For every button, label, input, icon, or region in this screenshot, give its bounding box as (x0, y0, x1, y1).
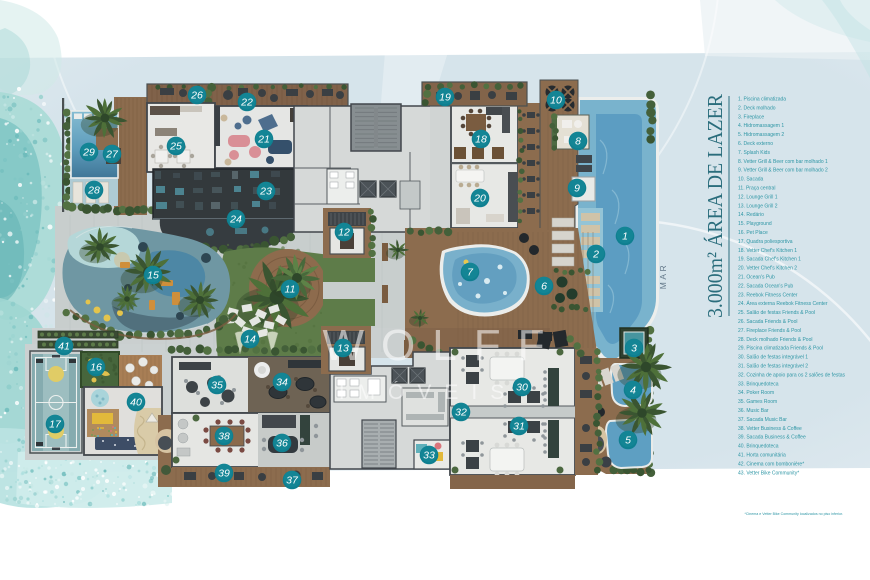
svg-text:31: 31 (513, 421, 525, 433)
svg-text:40. Brinquedoteca: 40. Brinquedoteca (738, 444, 779, 450)
svg-text:8. Vetter Grill & Beer com bar: 8. Vetter Grill & Beer com bar molhado 1 (738, 159, 828, 165)
svg-text:6: 6 (541, 281, 547, 293)
svg-text:26. Sacada Friends & Pool: 26. Sacada Friends & Pool (738, 319, 797, 325)
svg-text:35: 35 (211, 380, 223, 392)
svg-text:36: 36 (276, 438, 288, 450)
svg-text:41. Horta comunitária: 41. Horta comunitária (738, 453, 786, 459)
svg-text:32: 32 (455, 407, 467, 419)
svg-text:15: 15 (147, 270, 159, 282)
svg-text:31. Salão de festas integrável: 31. Salão de festas integrável 2 (738, 364, 808, 370)
svg-text:39: 39 (218, 468, 230, 480)
svg-text:7. Splash Kids: 7. Splash Kids (738, 150, 770, 156)
svg-text:41: 41 (58, 341, 70, 353)
svg-text:42. Cinema com bombonière*: 42. Cinema com bombonière* (738, 461, 804, 467)
svg-text:33: 33 (423, 450, 435, 462)
svg-text:33. Brinquedoteca: 33. Brinquedoteca (738, 381, 779, 387)
svg-text:25. Salão de festas Friends &: 25. Salão de festas Friends & Pool (738, 310, 815, 316)
svg-text:27: 27 (105, 149, 119, 161)
svg-text:8: 8 (575, 136, 581, 148)
svg-text:21. Ocean's Pub: 21. Ocean's Pub (738, 275, 775, 281)
svg-text:3.000m² ÁREA DE LAZER: 3.000m² ÁREA DE LAZER (703, 94, 727, 318)
svg-text:14: 14 (244, 334, 256, 346)
svg-text:37: 37 (286, 475, 299, 487)
svg-text:24: 24 (229, 214, 242, 226)
svg-text:22. Sacada Ocean's Pub: 22. Sacada Ocean's Pub (738, 283, 793, 289)
svg-text:IMÓVEIS: IMÓVEIS (339, 381, 518, 404)
svg-text:12. Lounge Grill 1: 12. Lounge Grill 1 (738, 194, 778, 200)
svg-text:1: 1 (622, 231, 628, 243)
svg-text:37. Sacada Music Bar: 37. Sacada Music Bar (738, 417, 787, 423)
svg-text:43. Vetter Bike Community*: 43. Vetter Bike Community* (738, 470, 799, 476)
svg-text:2. Deck molhado: 2. Deck molhado (738, 105, 776, 111)
svg-text:20: 20 (473, 193, 486, 205)
svg-text:10: 10 (550, 95, 562, 107)
svg-text:26: 26 (190, 90, 203, 102)
svg-text:19. Sacada Chef's Kitchen 1: 19. Sacada Chef's Kitchen 1 (738, 257, 801, 263)
svg-text:9. Vetter Grill & Beer com bar: 9. Vetter Grill & Beer com bar molhado 2 (738, 168, 828, 174)
svg-text:38. Vetter Business & Coffee: 38. Vetter Business & Coffee (738, 426, 802, 432)
svg-text:17. Quadra poliesportiva: 17. Quadra poliesportiva (738, 239, 793, 245)
svg-text:21: 21 (257, 134, 270, 146)
svg-text:24. Área externa Reebok Fitnes: 24. Área externa Reebok Fitness Center (738, 300, 828, 307)
svg-text:30. Salão de festas integrável: 30. Salão de festas integrável 1 (738, 355, 808, 361)
svg-text:11: 11 (285, 284, 296, 296)
svg-text:13: 13 (337, 343, 349, 355)
svg-text:40: 40 (130, 397, 142, 409)
svg-text:13. Lounge Grill 2: 13. Lounge Grill 2 (738, 203, 778, 209)
svg-text:1. Piscina climatizada: 1. Piscina climatizada (738, 97, 786, 103)
svg-text:19: 19 (439, 92, 451, 104)
svg-text:9: 9 (574, 183, 580, 195)
svg-text:*Cinema e Vetter Bike Communit: *Cinema e Vetter Bike Community localiza… (745, 512, 843, 516)
svg-text:39. Sacada Business & Coffee: 39. Sacada Business & Coffee (738, 435, 806, 441)
svg-text:MAR: MAR (658, 263, 668, 289)
svg-text:10. Sacada: 10. Sacada (738, 177, 764, 183)
svg-text:3: 3 (631, 343, 637, 355)
svg-text:11. Praça central: 11. Praça central (738, 186, 775, 192)
svg-text:38: 38 (218, 431, 230, 443)
svg-text:4. Hidromassagem 1: 4. Hidromassagem 1 (738, 123, 784, 129)
svg-text:5: 5 (625, 435, 631, 447)
svg-text:27. Fireplace Friends & Pool: 27. Fireplace Friends & Pool (738, 328, 801, 334)
svg-text:28: 28 (87, 185, 100, 197)
svg-text:35. Games Room: 35. Games Room (738, 399, 777, 405)
svg-text:2: 2 (592, 249, 599, 261)
svg-text:16: 16 (90, 362, 102, 374)
svg-text:16. Pet Place: 16. Pet Place (738, 230, 768, 236)
svg-text:WOLFF: WOLFF (323, 321, 562, 370)
svg-text:34. Poker Room: 34. Poker Room (738, 390, 774, 396)
svg-text:14. Redário: 14. Redário (738, 212, 764, 218)
svg-text:3. Fireplace: 3. Fireplace (738, 114, 764, 120)
svg-text:15. Playground: 15. Playground (738, 221, 772, 227)
svg-text:20. Vetter Chef's Kitchen 2: 20. Vetter Chef's Kitchen 2 (738, 266, 797, 272)
svg-text:28. Deck molhado Friends & Poo: 28. Deck molhado Friends & Pool (738, 337, 812, 343)
svg-text:23. Reebok Fitness Center: 23. Reebok Fitness Center (738, 292, 798, 298)
svg-text:22: 22 (240, 97, 253, 109)
svg-text:36. Music Bar: 36. Music Bar (738, 408, 769, 414)
svg-text:18: 18 (475, 134, 487, 146)
svg-text:17: 17 (49, 419, 62, 431)
svg-text:18. Vetter Chef's Kitchen 1: 18. Vetter Chef's Kitchen 1 (738, 248, 797, 254)
svg-text:34: 34 (276, 377, 288, 389)
svg-text:4: 4 (630, 385, 636, 397)
svg-text:12: 12 (338, 227, 350, 239)
svg-text:5. Hidromassagem 2: 5. Hidromassagem 2 (738, 132, 784, 138)
svg-text:32. Cozinha de apoio para os 2: 32. Cozinha de apoio para os 2 salões de… (738, 372, 846, 378)
svg-text:29. Piscina climatizada Friend: 29. Piscina climatizada Friends & Pool (738, 346, 823, 352)
svg-text:30: 30 (516, 382, 528, 394)
svg-text:23: 23 (259, 186, 272, 198)
svg-text:29: 29 (82, 147, 95, 159)
svg-text:25: 25 (169, 141, 182, 153)
svg-text:6. Deck externo: 6. Deck externo (738, 141, 773, 147)
